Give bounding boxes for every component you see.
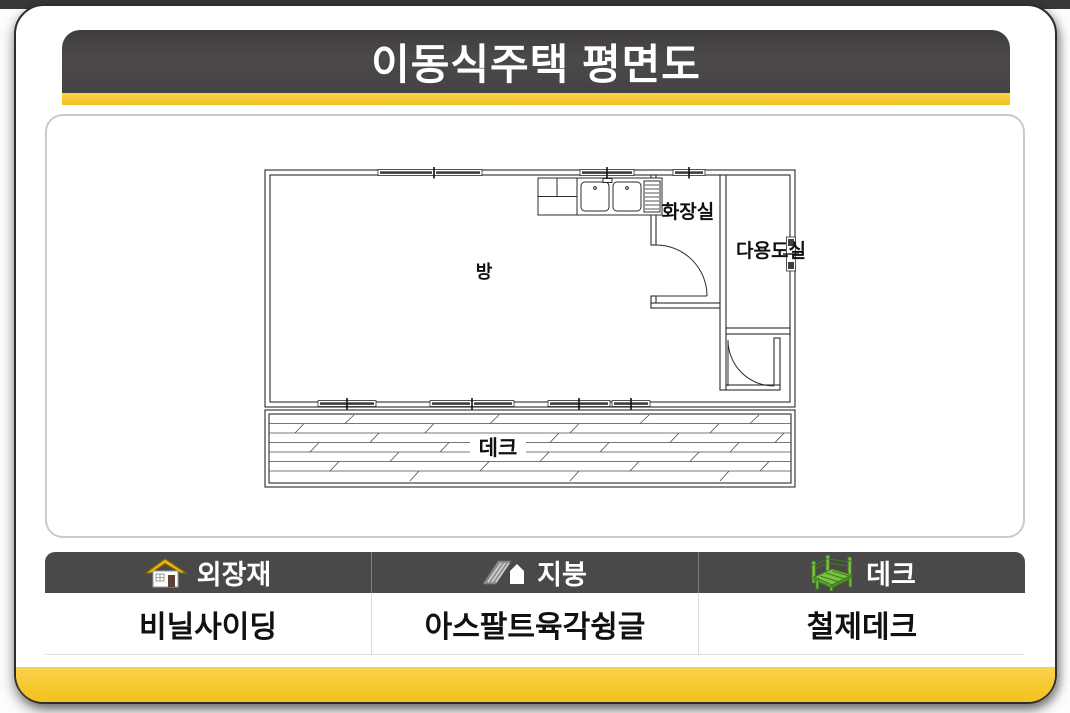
spec-table-header-row: 외장재 지붕 (45, 552, 1025, 593)
spec-header-label: 외장재 (197, 553, 272, 592)
footer-accent-bar (16, 667, 1055, 702)
title-bar: 이동식주택 평면도 (62, 30, 1010, 93)
room-label: 방 (476, 262, 493, 282)
floor-plan-drawing: 방 화장실 다용도실 데크 (250, 160, 810, 490)
spec-table-value-row: 비닐사이딩 아스팔트육각슁글 철제데크 (45, 593, 1025, 655)
floor-plan-panel: 방 화장실 다용도실 데크 (45, 114, 1025, 538)
utility-room-label: 다용도실 (736, 240, 806, 262)
deck-label: 데크 (479, 437, 518, 460)
house-icon (145, 556, 187, 590)
deck-icon (808, 555, 856, 591)
spec-header-exterior: 외장재 (45, 552, 371, 593)
spec-header-label: 데크 (866, 553, 916, 592)
bathroom-label: 화장실 (662, 201, 714, 223)
spec-header-label: 지붕 (537, 553, 587, 592)
spec-value-roof: 아스팔트육각슁글 (371, 593, 698, 654)
spec-table: 외장재 지붕 (45, 552, 1025, 655)
spec-value-deck: 철제데크 (698, 593, 1025, 654)
page: 이동식주택 평면도 (0, 0, 1070, 713)
spec-header-deck: 데크 (698, 552, 1025, 593)
spec-value-exterior: 비닐사이딩 (45, 593, 371, 654)
title-accent-line (62, 93, 1010, 105)
page-title: 이동식주택 평면도 (371, 31, 701, 92)
spec-header-roof: 지붕 (371, 552, 698, 593)
roof-icon (483, 557, 527, 589)
slide-card: 이동식주택 평면도 (14, 4, 1057, 704)
